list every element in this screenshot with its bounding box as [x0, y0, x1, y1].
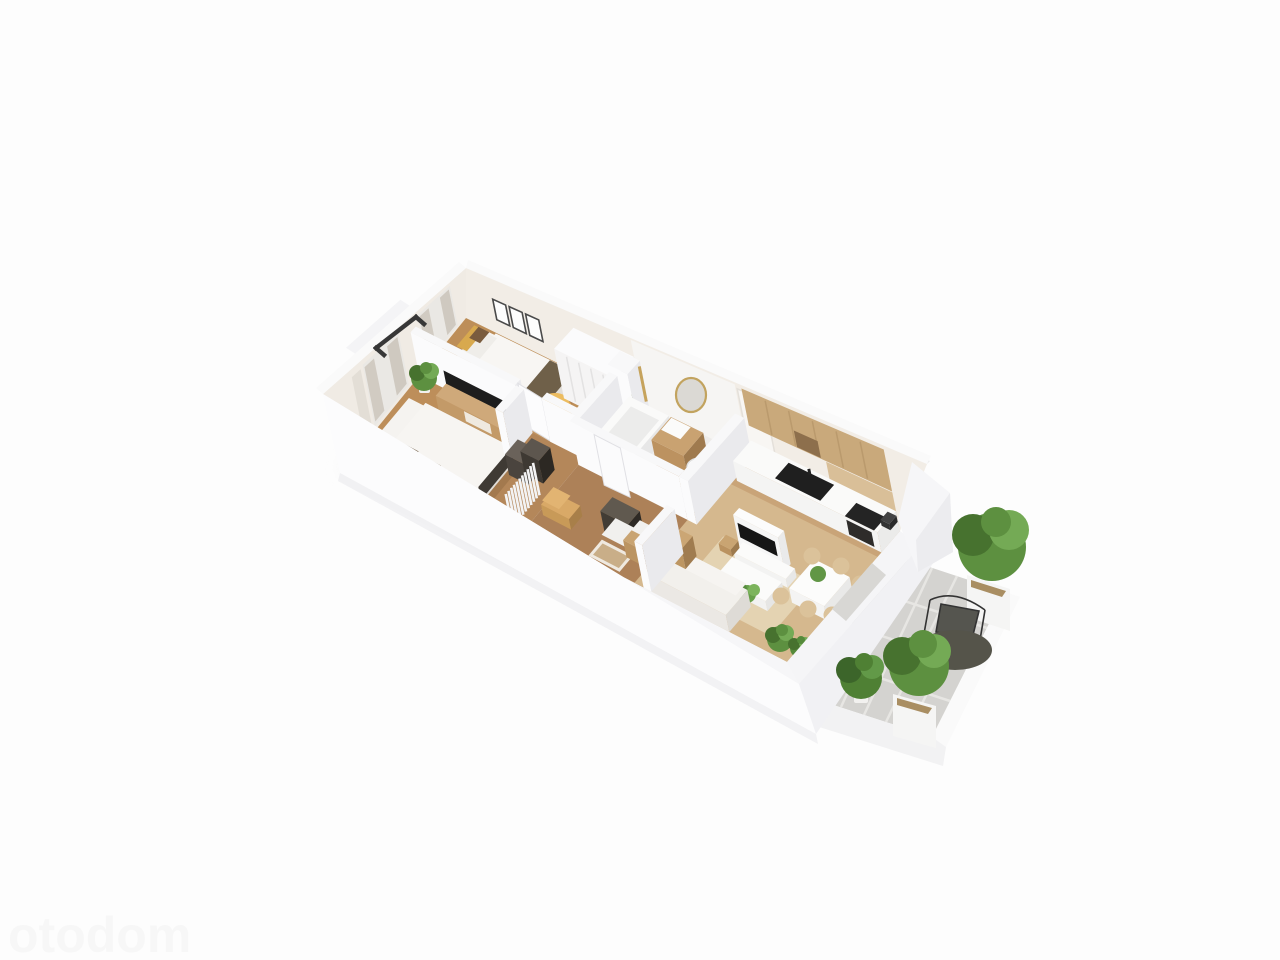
svg-text:otodom: otodom [8, 907, 191, 960]
